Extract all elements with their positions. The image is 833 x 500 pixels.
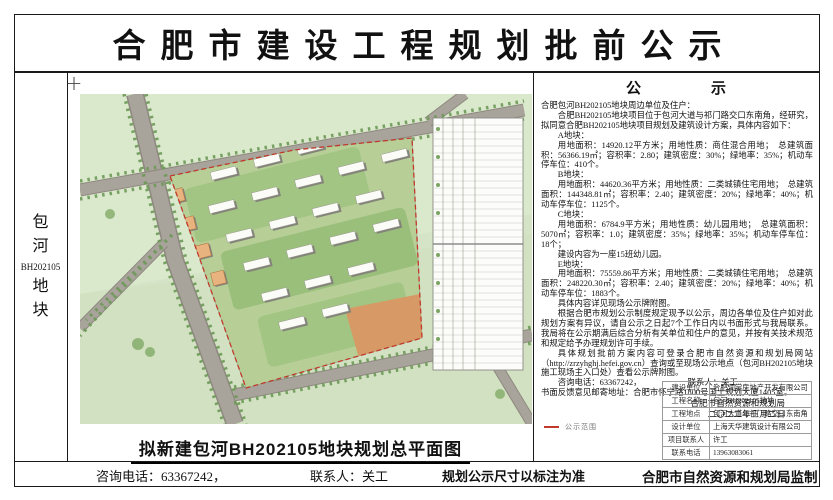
notice-paragraph: 合肥BH202105地块项目位于包河大道与祁门路交口东南角，经研究，拟同意合肥B… [541,111,813,131]
planning-notice-poster: 合肥市建设工程规划批前公示 包 河 BH202105 地 块 + [0,0,833,500]
info-value: 13963083061 [710,447,812,460]
notice-paragraph: 具体内容详见现场公示牌附图。 [541,299,813,309]
title-bar: 合肥市建设工程规划批前公示 [14,14,820,73]
notice-paragraph: E地块： [541,260,813,270]
footer-phone: 咨询电话：63367242， [96,466,226,485]
info-label: 工程地点 [663,408,710,421]
notice-paragraph: 合肥包河BH202105地块周边单位及住户： [541,101,813,111]
notice-paragraph: 建设内容为一座15班幼儿园。 [541,250,813,260]
footer-issuer: 合肥市自然资源和规划局监制 [642,466,818,486]
notice-paragraph: A地块： [541,131,813,141]
site-plan-map [80,94,532,424]
sidebar-char: 地 [32,278,48,296]
table-row: 工程地点 包河大道与祁门路交口东南角 [663,408,812,421]
info-label: 工程名称 [663,395,710,408]
info-value: 上海天华建筑设计有限公司 [710,421,812,434]
info-value: 包河BH202105地块 [710,395,812,408]
boundary-line-icon [544,426,559,428]
notice-paragraph: C地块： [541,210,813,220]
notice-paragraph: 用地面积：75559.86平方米；用地性质：二类城镇住宅用地； 总建筑面积：24… [541,269,813,299]
notice-paragraph: 用地面积：6784.9平方米；用地性质：幼儿园用地； 总建筑面积：5070㎡；容… [541,220,813,250]
notice-paragraph: 根据合肥市规划公示制度规定现予以公示，周边各单位及住户如对此规划方案有异议，请自… [541,309,813,349]
notice-paragraph: 用地面积：44620.36平方米；用地性质：二类城镇住宅用地； 总建筑面积：14… [541,180,813,210]
sidebar-char: 块 [32,302,48,320]
notice-paragraph: 具体规划批前方案内容可登录合肥市自然资源和规划局网站（http://zrzyhg… [541,349,813,379]
project-info-table: 建设单位 合肥润棠房地产开发有限公司 工程名称 包河BH202105地块 工程地… [662,381,812,460]
parcel-code: BH202105 [21,262,61,272]
boundary-legend-label: 公示范围 [565,422,597,432]
sidebar-char: 河 [32,238,48,256]
table-row: 建设单位 合肥润棠房地产开发有限公司 [663,382,812,395]
site-plan-panel: + [68,73,533,461]
indicator-table [433,118,523,370]
notice-text-panel: 公 示 合肥包河BH202105地块周边单位及住户： 合肥BH202105地块项… [533,73,820,461]
notice-paragraph: B地块： [541,170,813,180]
info-value: 包河大道与祁门路交口东南角 [710,408,812,421]
notice-paragraph: 用地面积：14920.12平方米；用地性质：商住混合用地； 总建筑面积：5636… [541,141,813,171]
page-title: 合肥市建设工程规划批前公示 [98,19,737,67]
map-origin-crosshair-icon: + [64,74,84,94]
table-row: 设计单位 上海天华建筑设计有限公司 [663,421,812,434]
table-row: 联系电话 13963083061 [663,447,812,460]
table-row: 工程名称 包河BH202105地块 [663,395,812,408]
info-label: 设计单位 [663,421,710,434]
table-row: 项目联系人 许工 [663,434,812,447]
notice-heading: 公 示 [541,77,813,98]
map-caption: 拟新建包河BH202105地块规划总平面图 [68,435,533,464]
info-value: 许工 [710,434,812,447]
footer-bar: 咨询电话：63367242， 联系人：关工 规划公示尺寸以标注为准 合肥市自然资… [14,461,820,487]
sidebar-char: 包 [32,214,48,232]
info-label: 联系电话 [663,447,710,460]
info-value: 合肥润棠房地产开发有限公司 [710,382,812,395]
info-label: 建设单位 [663,382,710,395]
parcel-sidebar: 包 河 BH202105 地 块 [14,73,68,461]
map-legend: 公示范围 [544,422,597,432]
footer-size-note: 规划公示尺寸以标注为准 [442,466,585,485]
info-label: 项目联系人 [663,434,710,447]
footer-contact: 联系人：关工 [310,466,388,485]
